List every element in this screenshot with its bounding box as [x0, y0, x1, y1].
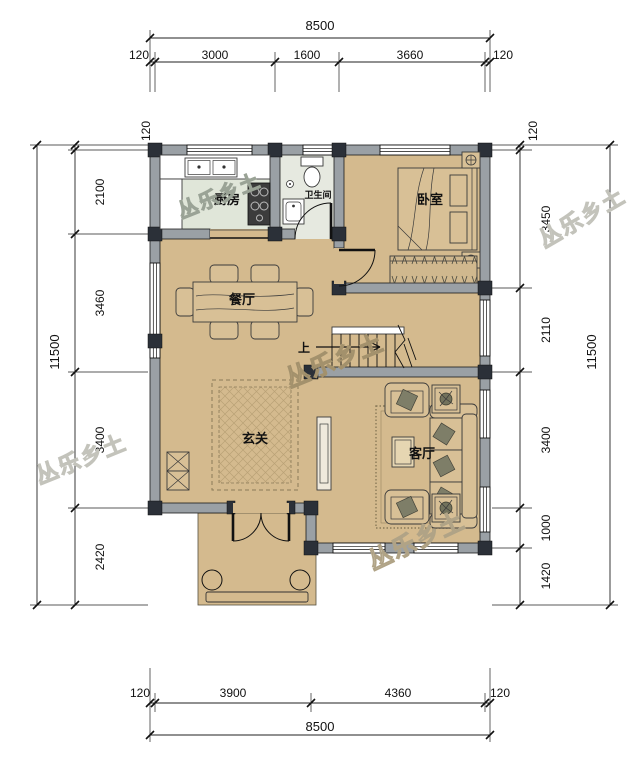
dim-bottom-seg: 120 [130, 686, 150, 700]
floor-plan-drawing: 上 [0, 0, 640, 760]
dining-chair [210, 321, 238, 339]
dining-chair [176, 288, 194, 316]
dim-right-seg: 1420 [539, 562, 553, 589]
dimensions-bottom: 120 3900 4360 120 8500 [130, 668, 510, 742]
dim-top-seg: 120 [493, 48, 513, 62]
dim-left-total: 11500 [47, 334, 62, 369]
dim-right-seg: 2110 [539, 317, 553, 343]
column [304, 541, 318, 555]
dining-chair [251, 321, 279, 339]
kitchen-opening [210, 229, 272, 239]
nightstand [462, 152, 480, 168]
dim-top-seg: 120 [129, 48, 149, 62]
dim-bottom-seg: 3900 [220, 686, 247, 700]
column [478, 365, 492, 379]
side-table-plant [432, 385, 460, 413]
shoe-cabinets [167, 452, 189, 490]
room-label-living: 客厅 [409, 446, 435, 461]
dim-right-seg: 120 [526, 121, 540, 141]
armchair [385, 383, 429, 417]
column [304, 501, 318, 515]
room-label-dining: 餐厅 [228, 292, 255, 307]
bed [398, 168, 477, 250]
porch-column-round [290, 570, 310, 590]
dim-top-seg: 1600 [294, 48, 321, 62]
column [478, 541, 492, 555]
watermark: 丛乐乡土 [32, 429, 130, 488]
wall-kitchen-bath [270, 155, 280, 239]
dim-bottom-total: 8500 [306, 719, 335, 734]
stairs-up-label: 上 [298, 340, 310, 355]
wall-bottom-left-a [150, 503, 233, 513]
dimensions-left: 120 2100 3460 3400 2420 11500 [30, 121, 153, 609]
dim-top-seg: 3000 [202, 48, 229, 62]
window-living-right-lower [480, 487, 490, 532]
dining-chair [295, 288, 313, 316]
porch-column-round [202, 570, 222, 590]
wall-bedroom-bottom [334, 283, 480, 293]
floor-drain [287, 181, 294, 188]
dim-bottom-seg: 120 [490, 686, 510, 700]
dim-left-seg: 3460 [93, 289, 107, 316]
dim-right-seg: 1000 [539, 514, 553, 541]
dining-chair [251, 265, 279, 283]
washbasin [283, 199, 304, 224]
wardrobe [390, 256, 477, 283]
room-label-bedroom: 卧室 [417, 192, 443, 207]
window-kitchen-top [187, 145, 252, 155]
tv-cabinet [317, 417, 331, 490]
room-label-bathroom: 卫生间 [304, 189, 331, 200]
dim-bottom-seg: 4360 [385, 686, 412, 700]
window-stairhall-right [480, 300, 490, 356]
column [332, 227, 346, 241]
dim-left-seg: 2100 [93, 178, 107, 205]
dim-left-seg: 120 [139, 121, 153, 141]
column [478, 281, 492, 295]
column [148, 501, 162, 515]
window-living-right-upper [480, 390, 490, 438]
window-bedroom-top [380, 145, 450, 155]
dim-top-seg: 3660 [397, 48, 424, 62]
dining-chair [210, 265, 238, 283]
column [148, 334, 162, 348]
window-bath-top [303, 145, 335, 155]
dim-top-total: 8500 [306, 18, 335, 33]
floor-plan-page: 上 [0, 0, 640, 760]
dim-left-seg: 2420 [93, 543, 107, 570]
column [268, 227, 282, 241]
kitchen-sink [185, 158, 237, 177]
dim-right-total: 11500 [584, 334, 599, 369]
dimensions-top: 8500 120 3000 1600 3660 120 [129, 18, 513, 92]
column [332, 143, 346, 157]
dim-right-seg: 3400 [539, 426, 553, 453]
armchair [385, 490, 429, 524]
room-label-foyer: 玄关 [242, 431, 268, 446]
